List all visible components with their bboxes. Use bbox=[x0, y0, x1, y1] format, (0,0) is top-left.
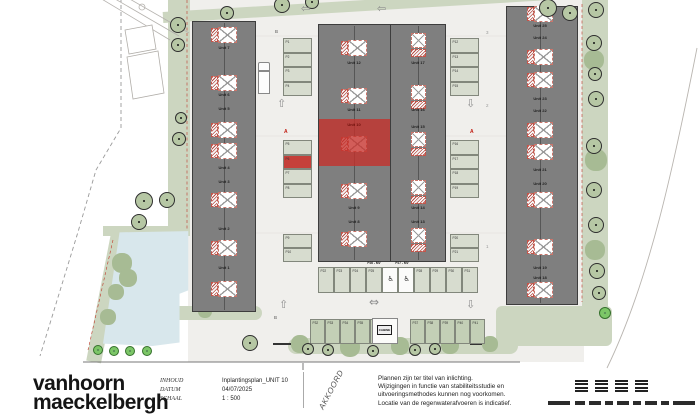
unit-label: Unit 20 bbox=[533, 181, 546, 186]
parking-space: P37 bbox=[410, 319, 425, 344]
tree-icon bbox=[135, 192, 153, 210]
garage-x-marker bbox=[411, 85, 426, 100]
garage-hatch-marker bbox=[211, 241, 218, 255]
shrub-blob bbox=[585, 240, 605, 260]
parking-space: P25 bbox=[366, 267, 382, 293]
unit-label: Unit 12 bbox=[347, 60, 360, 65]
garage-hatch-marker bbox=[341, 232, 348, 246]
unit-label: Unit 2 bbox=[218, 226, 229, 231]
unit-label: Unit 11 bbox=[347, 107, 360, 112]
parking-space: P30 bbox=[446, 267, 462, 293]
partner-logo-bar bbox=[615, 383, 628, 385]
partner-logo-bar bbox=[615, 390, 628, 392]
unit-label: Unit 17 bbox=[411, 60, 424, 65]
wheelchair-parking-space: ♿ bbox=[398, 267, 414, 293]
utility-cabin-label: CABINE bbox=[377, 325, 392, 335]
parking-space: P32 bbox=[310, 319, 325, 344]
garage-x-marker bbox=[218, 143, 237, 159]
parking-space: P20 bbox=[450, 234, 479, 248]
building-divider bbox=[390, 24, 391, 262]
unit-label: Unit 6 bbox=[218, 92, 229, 97]
tree-icon bbox=[586, 182, 602, 198]
garage-x-marker bbox=[534, 72, 553, 88]
tree-icon bbox=[589, 263, 605, 279]
parking-space: P21 bbox=[450, 248, 479, 262]
garage-x-marker bbox=[411, 33, 426, 48]
garage-x-marker bbox=[218, 240, 237, 256]
tree-icon bbox=[175, 112, 187, 124]
tree-icon bbox=[159, 192, 175, 208]
garage-x-marker bbox=[411, 180, 426, 195]
unit-label: Unit 1 bbox=[218, 265, 229, 270]
parking-space: P15 bbox=[450, 82, 479, 97]
bush-icon bbox=[142, 346, 152, 356]
reference-marker: B bbox=[275, 29, 278, 34]
tree-icon bbox=[588, 217, 604, 233]
garage-x-marker bbox=[534, 239, 553, 255]
direction-arrow-icon: ⇔ bbox=[369, 296, 379, 308]
unit-label: Unit 19 bbox=[533, 265, 546, 270]
clipped-wordmark-letter-top bbox=[661, 401, 669, 405]
parking-space: P16 bbox=[450, 140, 479, 155]
clipped-wordmark-letter-top bbox=[605, 401, 613, 405]
direction-arrow-icon: ⇧ bbox=[279, 299, 288, 310]
partner-logo-bar bbox=[615, 380, 628, 382]
unit-label: Unit 16 bbox=[411, 107, 424, 112]
parking-space: P33 bbox=[325, 319, 340, 344]
handicap-space-label: P26 - MV bbox=[367, 261, 380, 265]
site-plan-page: { "title_block": { "logo_line1": "vanhoo… bbox=[0, 0, 700, 408]
unit-label: Unit 7 bbox=[218, 45, 229, 50]
garage-x-marker bbox=[534, 192, 553, 208]
parking-space: P6 bbox=[283, 155, 312, 170]
reference-marker: B bbox=[274, 315, 277, 320]
tree-icon bbox=[220, 6, 234, 20]
partner-logo-bar bbox=[635, 387, 648, 389]
clipped-wordmark-letter-top bbox=[673, 401, 695, 405]
garage-hatch-marker bbox=[341, 89, 348, 103]
unit-label: Unit 18 bbox=[533, 275, 546, 280]
partner-logo-bars bbox=[0, 370, 700, 408]
garage-hatch-marker bbox=[527, 240, 534, 254]
unit-label: Unit 21 bbox=[533, 167, 546, 172]
partner-logo-bar bbox=[595, 390, 608, 392]
parking-space: P19 bbox=[450, 184, 479, 199]
tree-icon bbox=[367, 345, 379, 357]
parking-space: P12 bbox=[450, 38, 479, 53]
garage-hatch-marker bbox=[341, 184, 348, 198]
garage-hatch-marker bbox=[527, 145, 534, 159]
garage-x-marker bbox=[411, 132, 426, 147]
parking-space: P29 bbox=[430, 267, 446, 293]
direction-arrow-icon: ⇦ bbox=[301, 3, 310, 14]
partner-logo-bar bbox=[595, 383, 608, 385]
parking-space: P41 bbox=[470, 319, 485, 344]
garage-hatch-marker bbox=[211, 193, 218, 207]
unit-label: Unit 5 bbox=[218, 106, 229, 111]
tree-icon bbox=[172, 132, 186, 146]
partner-logo-bar bbox=[635, 390, 648, 392]
garage-x-marker bbox=[348, 183, 367, 199]
tree-icon bbox=[588, 67, 602, 81]
parking-space: P39 bbox=[440, 319, 455, 344]
shrub-blob bbox=[108, 284, 124, 300]
unit-label: Unit 22 bbox=[533, 108, 546, 113]
garage-x-marker bbox=[218, 281, 237, 297]
clipped-wordmark-letter-top bbox=[633, 401, 641, 405]
unit-label: Unit 13 bbox=[411, 219, 424, 224]
parking-space: P31 bbox=[462, 267, 478, 293]
garage-hatch-marker bbox=[527, 193, 534, 207]
clipped-wordmark-letter-top bbox=[575, 401, 585, 405]
plan-number: 2 bbox=[486, 103, 489, 108]
tree-icon bbox=[588, 91, 604, 107]
tree-icon bbox=[588, 2, 604, 18]
garage-x-marker bbox=[348, 40, 367, 56]
unit-label: Unit 15 bbox=[411, 124, 424, 129]
unit-label: Unit 23 bbox=[533, 96, 546, 101]
direction-arrow-icon: ⇩ bbox=[466, 299, 475, 310]
parking-space: P24 bbox=[350, 267, 366, 293]
partner-logo-bar bbox=[575, 390, 588, 392]
unit-label: Unit 4 bbox=[218, 165, 229, 170]
garage-x-marker bbox=[534, 122, 553, 138]
site-plan-drawing: Unit 7Unit 6Unit 5Unit 4Unit 3Unit 2Unit… bbox=[0, 0, 700, 370]
garage-x-marker bbox=[218, 122, 237, 138]
parking-space: P34 bbox=[340, 319, 355, 344]
tree-icon bbox=[562, 5, 578, 21]
handicap-space-label: P27 - MV bbox=[395, 261, 408, 265]
clipped-wordmark-letter-top bbox=[645, 401, 657, 405]
partner-logo-bar bbox=[635, 380, 648, 382]
garage-hatch-marker bbox=[211, 76, 218, 90]
parking-space: P22 bbox=[318, 267, 334, 293]
garage-hatch-marker bbox=[211, 282, 218, 296]
partner-logo-bar bbox=[575, 383, 588, 385]
garage-hatch-marker bbox=[211, 123, 218, 137]
unit-label: Unit 3 bbox=[218, 179, 229, 184]
bush-icon bbox=[93, 345, 103, 355]
shrub-blob bbox=[100, 309, 116, 325]
parking-space: P40 bbox=[455, 319, 470, 344]
garage-hatch-marker bbox=[411, 244, 426, 252]
garage-hatch-marker bbox=[341, 41, 348, 55]
clipped-wordmark-letter-top bbox=[617, 401, 629, 405]
tree-icon bbox=[302, 343, 314, 355]
garage-hatch-marker bbox=[527, 283, 534, 297]
parking-space: P13 bbox=[450, 53, 479, 68]
unit-label: Unit 10 bbox=[347, 122, 360, 127]
section-marker: A bbox=[284, 129, 288, 135]
bush-icon bbox=[599, 307, 611, 319]
wheelchair-parking-space: ♿ bbox=[382, 267, 398, 293]
tree-icon bbox=[586, 138, 602, 154]
garage-hatch-marker bbox=[527, 123, 534, 137]
garage-x-marker bbox=[218, 192, 237, 208]
garage-hatch-marker bbox=[411, 196, 426, 204]
tree-icon bbox=[242, 335, 258, 351]
parking-space: P4 bbox=[283, 82, 312, 97]
tree-icon bbox=[170, 17, 186, 33]
bush-icon bbox=[125, 346, 135, 356]
parking-space: P35 bbox=[355, 319, 370, 344]
tree-icon bbox=[592, 286, 606, 300]
partner-logo-bar bbox=[615, 387, 628, 389]
garage-x-marker bbox=[348, 88, 367, 104]
parking-space: P3 bbox=[283, 67, 312, 82]
direction-arrow-icon: ⇧ bbox=[277, 98, 286, 109]
clipped-wordmark-letter-top bbox=[548, 401, 570, 405]
parking-space: P9 bbox=[283, 234, 312, 248]
parking-space: P8 bbox=[283, 184, 312, 199]
garage-x-marker bbox=[411, 228, 426, 243]
truck-icon bbox=[258, 71, 270, 94]
garage-hatch-marker bbox=[211, 28, 218, 42]
parking-space: P28 bbox=[414, 267, 430, 293]
garage-hatch-marker bbox=[411, 148, 426, 156]
parking-space: P2 bbox=[283, 53, 312, 68]
unit-label: Unit 9 bbox=[348, 205, 359, 210]
unit-label: Unit 25 bbox=[533, 23, 546, 28]
garage-hatch-marker bbox=[411, 49, 426, 57]
unit-label: Unit 24 bbox=[533, 35, 546, 40]
garage-hatch-marker bbox=[527, 50, 534, 64]
partner-logo-bar bbox=[575, 380, 588, 382]
garage-x-marker bbox=[218, 75, 237, 91]
garage-x-marker bbox=[534, 282, 553, 298]
partner-logo-bar bbox=[575, 387, 588, 389]
direction-arrow-icon: ⇦ bbox=[377, 3, 386, 14]
parking-space: P38 bbox=[425, 319, 440, 344]
partner-logo-bar bbox=[595, 387, 608, 389]
parking-space: P10 bbox=[283, 248, 312, 262]
parking-space: P18 bbox=[450, 169, 479, 184]
tree-icon bbox=[586, 35, 602, 51]
parking-space: P5 bbox=[283, 140, 312, 155]
shrub-blob bbox=[119, 269, 137, 287]
tree-icon bbox=[429, 343, 441, 355]
unit-label: Unit 8 bbox=[348, 219, 359, 224]
parking-space: P7 bbox=[283, 169, 312, 184]
garage-hatch-marker bbox=[527, 7, 534, 21]
title-block: vanhoorn maeckelbergh INHOUD Inplantings… bbox=[0, 370, 700, 408]
tree-icon bbox=[131, 214, 147, 230]
parking-space: P17 bbox=[450, 155, 479, 170]
tree-icon bbox=[322, 344, 334, 356]
tree-icon bbox=[171, 38, 185, 52]
garage-x-marker bbox=[534, 49, 553, 65]
garage-x-marker bbox=[348, 231, 367, 247]
section-marker: A bbox=[470, 129, 474, 135]
bush-icon bbox=[109, 346, 119, 356]
garage-x-marker bbox=[218, 27, 237, 43]
parking-space: P23 bbox=[334, 267, 350, 293]
clipped-wordmark-letter-top bbox=[589, 401, 601, 405]
truck-icon bbox=[258, 62, 270, 71]
partner-logo-bar bbox=[595, 380, 608, 382]
parking-space: P14 bbox=[450, 67, 479, 82]
plan-number: 1 bbox=[486, 244, 489, 249]
garage-x-marker bbox=[534, 144, 553, 160]
unit-label: Unit 14 bbox=[411, 205, 424, 210]
direction-arrow-icon: ⇩ bbox=[466, 98, 475, 109]
partner-logo-bar bbox=[635, 383, 648, 385]
garage-hatch-marker bbox=[527, 73, 534, 87]
garage-hatch-marker bbox=[211, 144, 218, 158]
plan-number: 3 bbox=[486, 30, 489, 35]
parking-space: P1 bbox=[283, 38, 312, 53]
tree-icon bbox=[409, 344, 421, 356]
